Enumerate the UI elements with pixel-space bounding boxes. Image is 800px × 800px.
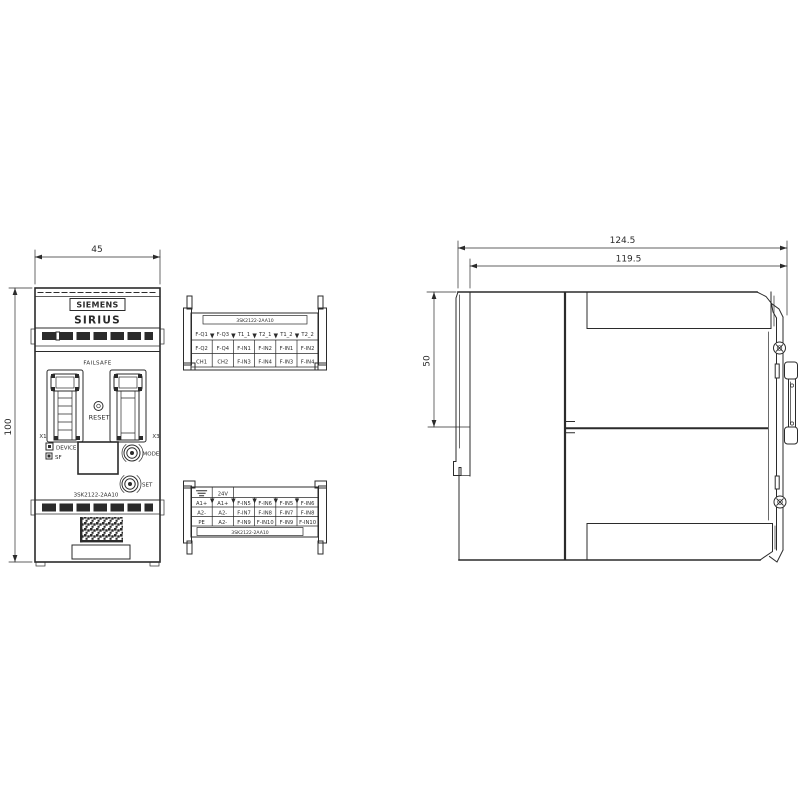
- dim-arrow-right: [153, 255, 160, 260]
- dimension-drawing-page: 45 100 SIEMENS SIRIUS: [0, 0, 800, 800]
- failsafe-label: FAILSAFE: [83, 361, 111, 367]
- terminal-label: F-IN8: [301, 511, 315, 517]
- terminal-label: F-IN7: [237, 511, 251, 517]
- sf-led: [46, 453, 52, 459]
- sf-led-label: SF: [55, 455, 62, 461]
- reset-label: RESET: [89, 414, 110, 422]
- terminal-label: CH2: [217, 360, 228, 366]
- terminal-block-bottom: 24V A1+ A1+ F-IN5 F-IN6 F-IN5 F-IN6 A2- …: [184, 481, 327, 554]
- terminal-clip-right: [315, 296, 327, 370]
- terminal-block-top: 3SK2122-2AA10 F-Q1 F-Q3 T1_1 T2_1 T1_2 T…: [184, 296, 327, 370]
- dimension-width-45: 45: [35, 245, 160, 284]
- device-led-label: DEVICE: [56, 446, 77, 452]
- dimension-drawing: 45 100 SIEMENS SIRIUS: [0, 0, 800, 800]
- dim-arrow-top: [13, 288, 18, 295]
- terminal-label: A2-: [218, 520, 227, 526]
- dim-arrow-bottom: [13, 555, 18, 562]
- mode-button[interactable]: [122, 445, 143, 462]
- dim-upper-section-value: 50: [423, 355, 433, 367]
- lower-terminal-strip: [31, 500, 164, 515]
- terminal-label: F-IN3: [280, 360, 294, 366]
- front-part-number: 3SK2122-2AA10: [74, 493, 119, 499]
- dimension-height-100: 100: [4, 288, 32, 562]
- terminal-label: F-IN7: [280, 511, 294, 517]
- reset-button[interactable]: [94, 402, 103, 411]
- bracket-slot-lower: [775, 476, 779, 489]
- terminal-bottom-footer: 3SK2122-2AA10: [231, 530, 268, 536]
- terminal-label: F-IN10: [299, 520, 316, 526]
- terminal-label: T1_2: [279, 332, 292, 338]
- din-clip-tabs: [785, 362, 798, 444]
- terminal-label: F-IN2: [301, 346, 315, 352]
- terminal-label: F-IN5: [237, 501, 251, 507]
- side-view: 124.5 119.5 50: [423, 236, 798, 562]
- x1-label: X1: [39, 434, 46, 440]
- series-label: SIRIUS: [74, 315, 121, 327]
- terminal-label: F-IN6: [301, 501, 315, 507]
- terminal-label: F-IN4: [258, 360, 272, 366]
- display-window: [78, 442, 118, 474]
- relay-window-left: [47, 370, 83, 442]
- dim-width-value: 45: [91, 245, 102, 255]
- upper-terminal-strip: [31, 328, 164, 352]
- datamatrix-code: [80, 517, 123, 542]
- terminal-label: F-Q3: [217, 332, 229, 338]
- terminal-label: F-IN10: [257, 520, 274, 526]
- device-led: [46, 443, 53, 450]
- dim-depth-total-value: 124.5: [610, 236, 636, 246]
- terminal-label: A1+: [217, 501, 228, 507]
- bracket-screw-lower: [774, 496, 786, 508]
- x3-label: X3: [152, 434, 160, 440]
- terminal-label: F-IN8: [258, 511, 272, 517]
- dimension-depth-119-5: 119.5: [470, 255, 787, 289]
- terminal-label: F-IN1: [237, 346, 251, 352]
- terminal-label: F-Q1: [195, 332, 207, 338]
- terminal-label: CH1: [196, 360, 207, 366]
- dim-height-value: 100: [4, 418, 14, 435]
- terminal-label: F-IN9: [280, 520, 294, 526]
- terminal-label: A2-: [218, 511, 227, 517]
- terminal-label: F-IN5: [280, 501, 294, 507]
- terminal-label: F-IN1: [280, 346, 294, 352]
- terminal-label: A2-: [197, 511, 206, 517]
- functional-earth-icon: [197, 491, 207, 496]
- set-button[interactable]: [120, 476, 141, 493]
- terminal-label: F-IN9: [237, 520, 251, 526]
- supply-label: 24V: [218, 491, 229, 497]
- dim-depth-body-value: 119.5: [616, 255, 642, 265]
- dimension-upper-50: 50: [423, 292, 471, 427]
- terminal-clip-left: [184, 296, 196, 370]
- front-view: 45 100 SIEMENS SIRIUS: [4, 245, 164, 566]
- terminal-label: T2_2: [300, 332, 313, 338]
- bottom-label-plate: [72, 545, 130, 559]
- terminal-label: F-IN2: [258, 346, 272, 352]
- terminal-label: F-IN6: [258, 501, 272, 507]
- terminal-label: F-Q2: [195, 346, 207, 352]
- bracket-slot-upper: [775, 364, 779, 378]
- terminal-label: F-IN4: [301, 360, 315, 366]
- set-label: SET: [142, 483, 153, 489]
- side-body-outline: [454, 292, 776, 560]
- terminal-label: A1+: [196, 501, 207, 507]
- terminal-clip-left-bottom: [184, 481, 196, 554]
- terminal-label: PE: [198, 520, 204, 526]
- din-rail-bracket: [757, 292, 798, 562]
- dimension-depth-124-5: 124.5: [458, 236, 787, 315]
- terminal-top-header: 3SK2122-2AA10: [236, 318, 273, 324]
- brand-label: SIEMENS: [76, 301, 118, 310]
- terminal-label: F-Q4: [217, 346, 230, 352]
- relay-window-right: [110, 370, 146, 442]
- mode-label: MODE: [143, 452, 160, 458]
- terminal-label: T2_1: [258, 332, 271, 338]
- terminal-clip-right-bottom: [315, 481, 327, 554]
- bracket-screw-upper: [774, 342, 786, 354]
- dim-arrow-left: [35, 255, 42, 260]
- terminal-label: T1_1: [237, 332, 250, 338]
- terminal-label: F-IN3: [237, 360, 251, 366]
